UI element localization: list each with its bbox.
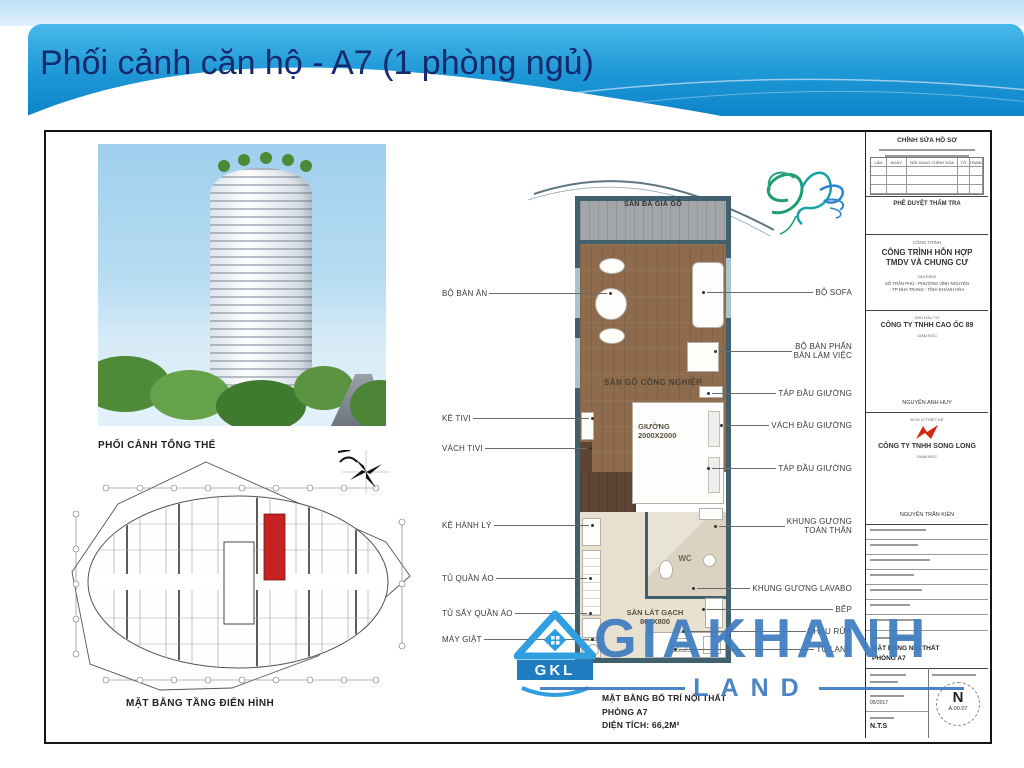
callout-wardrobe: TỦ QUẦN ÁO	[442, 574, 592, 583]
unit-floor-plan: SÀN ĐÁ GIẢ GỖ	[575, 188, 731, 666]
personnel-row	[866, 584, 988, 600]
location-label: ĐỊA ĐIỂM	[866, 274, 988, 279]
watermark-sub-text: LAND	[693, 674, 810, 703]
personnel-row	[866, 539, 988, 555]
roof-tree	[260, 152, 272, 164]
top-strip	[0, 0, 1024, 26]
investor-signer: NGUYỄN ANH HUY	[866, 400, 988, 406]
callout-tv-shelf: KỆ TIVI	[442, 414, 594, 423]
floor-material-label: SÀN GỖ CÔNG NGHIỆP	[575, 378, 731, 387]
callout-nightstand-2: TÁP ĐẦU GIƯỜNG	[707, 464, 852, 473]
roof-tree	[300, 160, 312, 172]
typical-floor-plan	[56, 450, 438, 694]
slide: Phối cảnh căn hộ - A7 (1 phòng ngủ) PHỐI…	[0, 0, 1024, 768]
revision-table: LẦN NGÀY NỘI DUNG CHỈNH SỬA TỜ TRANG	[870, 157, 984, 195]
designer-signer: NGUYỄN TRẦN KIÊN	[866, 512, 988, 518]
scale-value: N.T.S	[870, 723, 887, 730]
revision-header: CHỈNH SỬA HỒ SƠ	[866, 137, 988, 144]
callout-tv-wall: VÁCH TIVI	[442, 444, 592, 453]
watermark-name: GIAKHANH	[594, 606, 930, 670]
wardrobe-band	[580, 472, 636, 512]
title-banner: Phối cảnh căn hộ - A7 (1 phòng ngủ)	[28, 24, 1024, 116]
callout-nightstand-1: TÁP ĐẦU GIƯỜNG	[707, 389, 852, 398]
roof-tree	[218, 160, 230, 172]
dining-chair	[599, 258, 625, 274]
bed-label: GIƯỜNG 2000X2000	[638, 422, 676, 440]
location-text: SỐ TRẦN PHÚ - PHƯỜNG VĨNH NGUYÊN - TP NH…	[866, 281, 988, 294]
callout-lavabo-mirror: KHUNG GƯƠNG LAVABO	[692, 584, 852, 593]
designer-logo-icon	[914, 424, 940, 441]
callout-sofa: BỘ SOFA	[702, 288, 852, 297]
plan-caption: MẶT BẰNG TẦNG ĐIỂN HÌNH	[126, 698, 274, 709]
designer-label: ĐƠN VỊ THIẾT KẾ	[866, 417, 988, 422]
personnel-row	[866, 524, 988, 540]
project-name: CÔNG TRÌNH HỖN HỢP TMDV VÀ CHUNG CƯ	[866, 248, 988, 269]
callout-vanity-desk: BỘ BÀN PHẤN BÀN LÀM VIỆC	[714, 342, 852, 360]
wc-label: WC	[645, 554, 725, 563]
callout-full-mirror: KHUNG GƯƠNG TOÀN THÂN	[714, 517, 852, 535]
page-title: Phối cảnh căn hộ - A7 (1 phòng ngủ)	[40, 44, 594, 83]
designer-role: GIÁM ĐỐC	[866, 454, 988, 459]
building-rendering	[98, 144, 386, 426]
developer-fairy-logo-icon	[750, 160, 850, 240]
investor-label: CHỦ ĐẦU TƯ	[866, 315, 988, 320]
tree	[216, 380, 306, 426]
drawing-number: A.00.07	[937, 706, 979, 712]
pillow	[708, 457, 720, 493]
watermark-sub: LAND	[540, 674, 964, 703]
highlighted-unit-a7	[264, 514, 285, 580]
roof-tree	[282, 154, 294, 166]
project-label: CÔNG TRÌNH	[866, 240, 988, 245]
dining-chair	[599, 328, 625, 344]
investor-role: GIÁM ĐỐC	[866, 333, 988, 338]
callout-dining-set: BỘ BÀN ĂN	[442, 289, 612, 298]
personnel-row	[866, 554, 988, 570]
pillow	[708, 411, 720, 447]
tower-image	[210, 168, 312, 398]
balcony-label: SÀN ĐÁ GIẢ GỖ	[575, 201, 731, 208]
bed	[632, 402, 724, 504]
callout-luggage-shelf: KỆ HÀNH LÝ	[442, 521, 594, 530]
callout-headboard-wall: VÁCH ĐẦU GIƯỜNG	[720, 421, 852, 430]
personnel-row	[866, 569, 988, 585]
designer-name: CÔNG TY TNHH SONG LONG	[866, 443, 988, 450]
approval-header: PHÊ DUYỆT THẨM TRA	[866, 201, 988, 207]
investor-name: CÔNG TY TNHH CAO ỐC 89	[866, 322, 988, 329]
roof-tree	[238, 154, 250, 166]
